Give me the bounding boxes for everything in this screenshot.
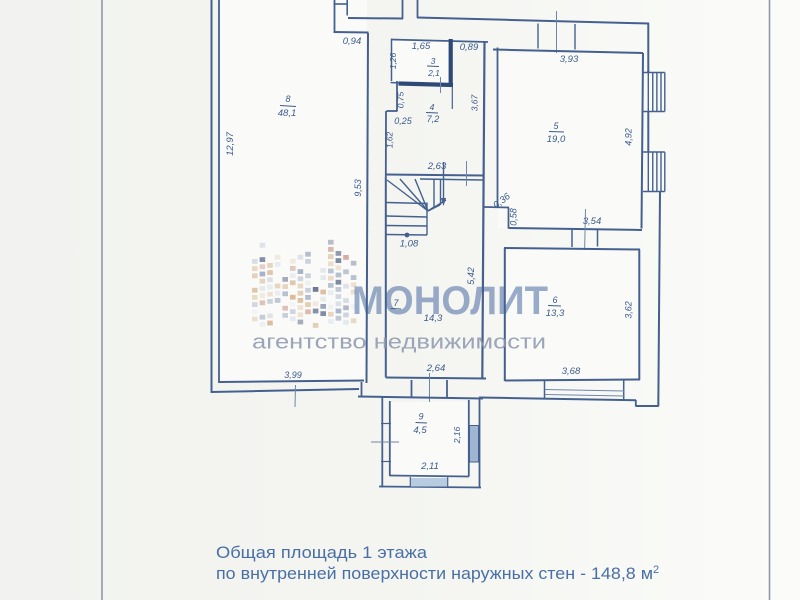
svg-text:3,67: 3,67	[470, 94, 480, 111]
svg-text:4,5: 4,5	[413, 425, 427, 436]
svg-text:2,11: 2,11	[420, 461, 439, 472]
svg-text:2,1: 2,1	[427, 68, 440, 78]
svg-text:8: 8	[285, 94, 290, 104]
svg-text:1,08: 1,08	[400, 239, 419, 250]
svg-text:12,97: 12,97	[225, 131, 236, 155]
svg-text:3: 3	[431, 56, 436, 66]
svg-text:13,3: 13,3	[546, 308, 565, 319]
svg-text:по внутренней поверхности нару: по внутренней поверхности наружных стен …	[216, 564, 659, 583]
svg-text:9: 9	[418, 412, 423, 422]
svg-text:2,64: 2,64	[426, 363, 446, 374]
svg-text:4: 4	[430, 102, 435, 112]
svg-text:3,62: 3,62	[624, 301, 634, 319]
svg-text:19,0: 19,0	[547, 134, 566, 145]
svg-text:9,53: 9,53	[353, 179, 363, 197]
svg-text:1,62: 1,62	[385, 131, 395, 148]
svg-text:0,94: 0,94	[343, 36, 362, 47]
svg-text:1,65: 1,65	[412, 41, 431, 52]
svg-text:0,89: 0,89	[460, 42, 479, 53]
svg-text:1,26: 1,26	[388, 52, 398, 69]
svg-text:2,16: 2,16	[452, 426, 462, 444]
svg-text:3,99: 3,99	[284, 370, 302, 380]
svg-text:агентство недвижимости: агентство недвижимости	[252, 332, 546, 354]
svg-text:3,68: 3,68	[562, 366, 581, 377]
svg-text:7,2: 7,2	[427, 114, 440, 124]
svg-text:3,93: 3,93	[560, 54, 579, 65]
svg-text:0,75: 0,75	[396, 91, 406, 108]
svg-text:3,54: 3,54	[583, 216, 602, 227]
svg-text:0,25: 0,25	[394, 116, 413, 126]
svg-text:Общая площадь 1 этажа: Общая площадь 1 этажа	[216, 544, 428, 562]
svg-text:4,92: 4,92	[624, 128, 634, 146]
svg-text:48,1: 48,1	[278, 108, 297, 119]
svg-text:МОНОЛИТ: МОНОЛИТ	[352, 279, 548, 323]
svg-text:0,58: 0,58	[509, 208, 519, 226]
svg-text:6: 6	[552, 295, 557, 305]
